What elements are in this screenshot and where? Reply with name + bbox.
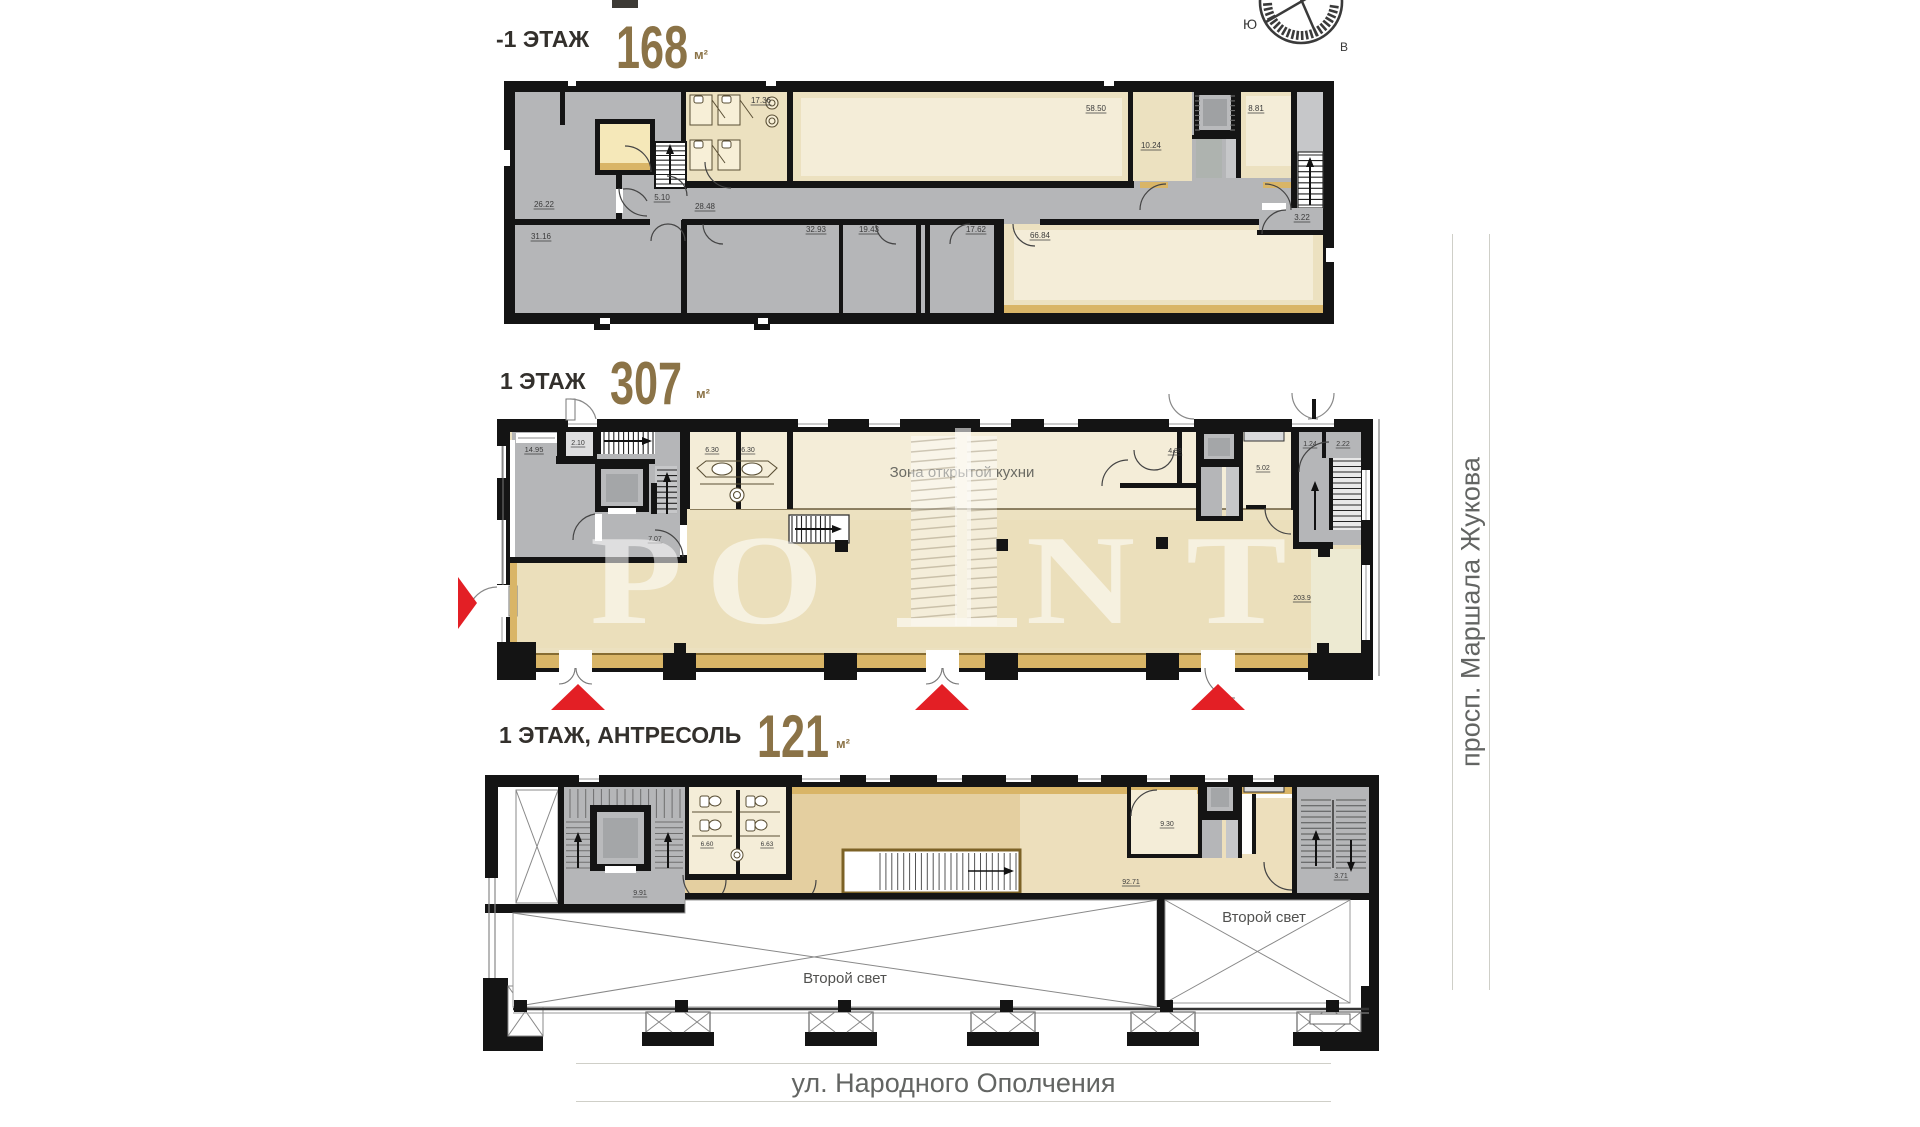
- svg-text:6.30: 6.30: [705, 447, 719, 454]
- svg-text:92.71: 92.71: [1122, 879, 1140, 886]
- svg-text:14.95: 14.95: [525, 445, 544, 454]
- svg-text:6.63: 6.63: [761, 841, 774, 848]
- svg-text:6.60: 6.60: [701, 841, 714, 848]
- svg-text:26.22: 26.22: [534, 200, 555, 209]
- svg-text:4.88: 4.88: [1168, 448, 1182, 455]
- svg-text:Второй свет: Второй свет: [1222, 909, 1306, 926]
- svg-text:17.36: 17.36: [751, 96, 772, 105]
- svg-text:203.9: 203.9: [1293, 595, 1311, 602]
- svg-text:28.48: 28.48: [695, 202, 716, 211]
- svg-text:5.10: 5.10: [654, 193, 670, 202]
- svg-text:17.62: 17.62: [966, 225, 987, 234]
- svg-text:2.10: 2.10: [571, 440, 585, 447]
- svg-text:Ю: Ю: [1243, 16, 1257, 32]
- svg-text:9.30: 9.30: [1160, 821, 1174, 828]
- svg-text:В: В: [1340, 40, 1348, 54]
- svg-text:3.22: 3.22: [1294, 213, 1310, 222]
- svg-text:31.16: 31.16: [531, 232, 552, 241]
- svg-text:32.93: 32.93: [806, 225, 827, 234]
- svg-text:9.91: 9.91: [633, 890, 647, 897]
- svg-text:6.30: 6.30: [741, 447, 755, 454]
- svg-text:2.22: 2.22: [1336, 441, 1350, 448]
- svg-text:Второй свет: Второй свет: [803, 970, 887, 987]
- svg-text:58.50: 58.50: [1086, 104, 1107, 113]
- svg-text:10.24: 10.24: [1141, 141, 1162, 150]
- svg-text:5.02: 5.02: [1256, 465, 1270, 472]
- svg-text:66.84: 66.84: [1030, 231, 1051, 240]
- svg-text:1.24: 1.24: [1303, 441, 1317, 448]
- svg-text:8.81: 8.81: [1248, 104, 1264, 113]
- svg-text:3.71: 3.71: [1334, 873, 1348, 880]
- svg-text:19.43: 19.43: [859, 225, 880, 234]
